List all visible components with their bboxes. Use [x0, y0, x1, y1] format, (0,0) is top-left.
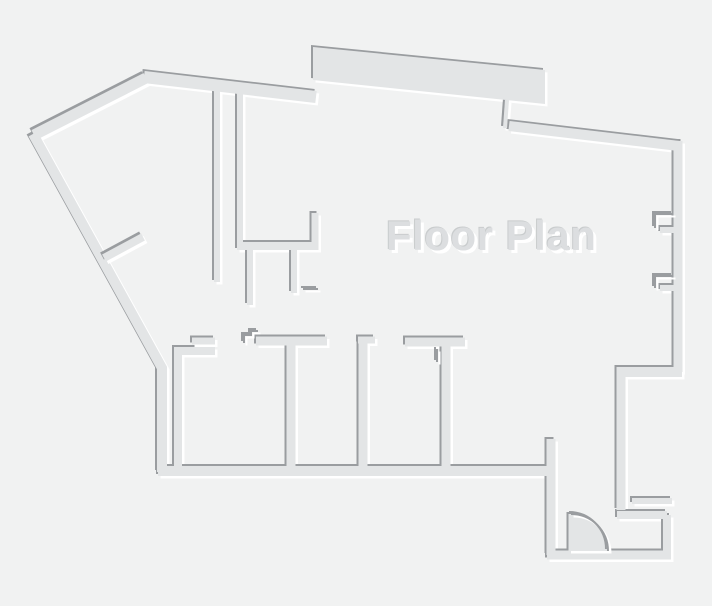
outer-top-wall — [144, 77, 316, 97]
floor-plan-canvas — [0, 0, 712, 606]
top-band-wall — [313, 47, 545, 104]
outer-left-wall — [33, 134, 162, 472]
door-jog-mark — [244, 331, 258, 343]
window-notch-1 — [655, 214, 673, 228]
floor-plan-title: Floor Plan — [386, 212, 596, 260]
band-connector-wall — [505, 100, 507, 128]
left-door-leaf — [104, 237, 143, 258]
floor-plan-viewport: Floor Plan — [0, 0, 712, 606]
outer-top-left-diagonal-wall — [34, 78, 146, 135]
outer-top-right-wall — [509, 126, 679, 146]
detail-marks-layer — [244, 214, 673, 551]
walls-layer — [33, 47, 682, 555]
